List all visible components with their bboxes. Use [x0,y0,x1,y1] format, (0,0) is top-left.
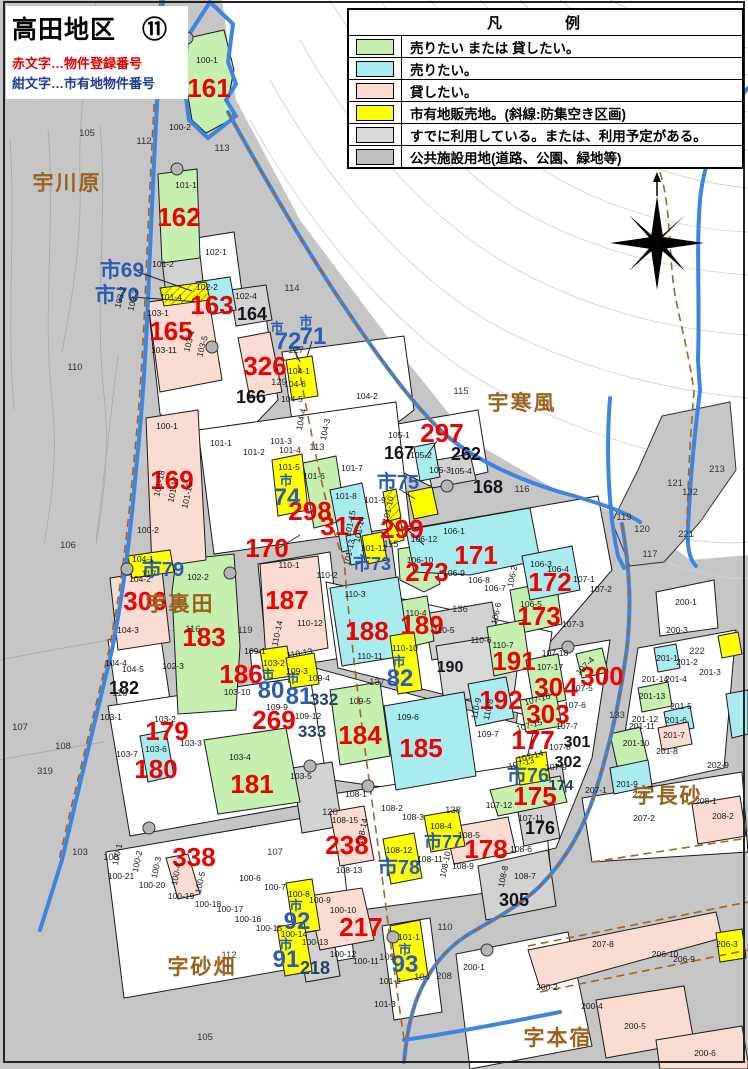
lot-label: 200-5 [624,1021,646,1031]
road-label: 110 [437,922,452,933]
lot-label: 107-17 [537,662,564,672]
lot-label: 106-9 [443,568,465,578]
lot-label: 108-7 [514,871,536,881]
lot-label: 103-11 [151,345,177,355]
legend-color-swatch [356,61,394,77]
navy-label: 332 [310,690,338,709]
lot-label: 201-10 [623,738,650,748]
road-label: 137 [369,677,385,688]
road-label: 105 [79,128,95,139]
lot-label: 103-3 [180,738,202,748]
lot-label: 108-9 [452,861,474,871]
lot-label: 103-4 [229,752,251,762]
area-label: 宇寒風 [488,391,557,415]
lot-label: 201-8 [656,746,678,756]
lot-label: 201-6 [665,715,687,725]
lot-label: 100-19 [168,891,195,901]
lot-label: 106-4 [547,564,569,574]
legend-row-5: 公共施設用地(道路、公園、緑地等) [349,146,742,167]
lot-label: 102-4 [235,291,257,301]
lot-label: 107-9 [545,762,567,772]
parcel-yellow [718,632,742,658]
lot-label: 202-9 [707,760,729,770]
red-number-note: 赤文字…物件登録番号 [12,54,182,74]
red-label: 191 [492,646,535,676]
lot-label: 108-4 [430,821,452,831]
area-label: 宇長砂 [634,784,703,808]
road-label: 138 [445,805,461,816]
road-label: 213 [709,464,725,475]
lot-label: 100-17 [217,904,244,914]
lot-label: 206-9 [673,954,695,964]
lot-label: 108-13 [336,865,363,875]
legend-swatch-cell [349,58,402,79]
road-label: 112 [136,136,151,147]
lot-label: 201-5 [670,701,692,711]
lot-label: 108-11 [417,854,443,864]
road-label: 105 [197,1032,213,1043]
lot-label: 107-5 [571,683,593,693]
legend-swatch-cell [349,146,402,167]
road-label: 132 [682,487,698,498]
blue-label: 91 [273,946,300,973]
red-label: 186 [219,659,262,689]
navy-label: 174 [548,777,574,794]
road-label: 121 [667,478,683,489]
lot-label: 109-1 [244,646,266,656]
lot-label: 101-1 [210,438,232,448]
road-label: 116 [514,484,529,495]
lot-label: 109-9 [266,702,288,712]
dark-label: 262 [451,444,481,464]
lot-label: 102-2 [187,572,209,582]
road-label: 108 [55,741,71,752]
legend-label: 公共施設用地(道路、公園、緑地等) [402,147,622,167]
lot-label: 110-7 [492,640,513,650]
lot-label: 109-12 [295,711,322,721]
red-label: 217 [339,912,382,942]
lot-label: 101-6 [303,471,325,481]
road-label: 104 [414,972,430,983]
lot-label: 104-5 [122,664,144,674]
road-label: 319 [37,766,53,777]
blue-label: 市77 [424,831,462,852]
legend-swatch-cell [349,102,402,123]
blue-label: 81 [286,683,313,710]
lot-label: 108-15 [332,815,359,825]
lot-label: 101-3 [374,999,396,1009]
lot-label: 105-1 [388,430,410,440]
red-label: 181 [230,769,273,799]
lot-label: 100-20 [139,880,166,890]
lot-label: 104-1 [288,366,310,376]
lot-label: 107-7 [556,721,578,731]
legend-swatch-cell [349,124,402,145]
blue-label: 市73 [353,553,391,574]
road-label: 136 [452,604,468,615]
road-label: 116 [185,624,200,635]
lot-label: 100-8 [288,889,310,899]
lot-label: 101-2 [152,259,174,269]
red-label: 163 [190,290,233,320]
road-label: 107 [267,847,283,858]
lot-label: 110-1 [278,560,299,570]
lot-label: 201-14 [642,674,669,684]
lot-label: 108-1 [345,789,367,799]
lot-label: 106-5 [520,599,542,609]
lot-label: 101-7 [341,463,363,473]
lot-label: 109-6 [397,712,419,722]
lot-label: 201-4 [665,674,687,684]
legend-label: 市有地販売地。(斜線:防集空き区画) [402,103,626,123]
road-label: 117 [642,549,657,560]
lot-label: 103-7 [116,749,138,759]
lot-label: 107-12 [486,800,513,810]
lot-label: 103-2 [263,658,285,668]
lot-label: 108-2 [381,803,403,813]
road-label: 114 [284,283,299,294]
navy-label: 333 [298,722,326,741]
legend-label: 売りたい。 [402,59,478,79]
lot-label: 207-8 [592,939,614,949]
lot-label: 107-18 [542,648,569,658]
road-label: 109 [379,952,395,963]
lot-label: 100-10 [330,905,357,915]
lot-label: 101-2 [379,976,401,986]
red-label: 170 [245,533,288,563]
legend-title: 凡 例 [349,10,742,36]
road-label: 127 [288,345,304,356]
red-label: 161 [187,73,230,103]
lot-label: 200-6 [694,1048,716,1058]
legend-color-swatch [356,39,394,55]
lot-label: 200-4 [581,1001,603,1011]
legend-row-3: 市有地販売地。(斜線:防集空き区画) [349,102,742,124]
road-label: 133 [609,710,625,721]
lot-label: 104-3 [117,625,139,635]
blue-label: 80 [258,677,285,704]
lot-label: 201-13 [639,691,666,701]
dark-label: 168 [473,477,503,497]
lot-label: 107-6 [564,700,586,710]
lot-label: 105-4 [450,466,472,476]
lot-label: 101-12 [361,543,388,553]
red-label: 180 [134,754,177,784]
lot-label: 104-5 [281,394,303,404]
legend-swatch-cell [349,36,402,57]
lot-label: 108-5 [458,830,480,840]
legend-label: 貸したい。 [402,81,478,101]
lot-label: 103-1 [147,308,169,318]
lot-label: 107-8 [549,742,571,752]
lot-label: 201-2 [676,657,698,667]
lot-label: 108-3 [402,812,424,822]
lot-label: 100-9 [309,895,331,905]
blue-label: 82 [387,665,414,692]
road-label: 106 [60,540,76,551]
lot-label: 105-3 [429,465,451,475]
lot-label: 201-3 [699,667,721,677]
area-label: 宇裏田 [146,592,215,616]
red-label: 185 [399,733,442,763]
lot-label: 110-6 [470,635,491,645]
dark-label: 166 [236,387,266,407]
lot-label: 201-7 [663,730,685,740]
lot-label: 109-4 [308,673,330,683]
lot-label: 104-2 [356,391,378,401]
lot-label: 100-6 [239,873,261,883]
road-label: 119 [616,512,631,523]
legend-row-4: すでに利用している。または、利用予定がある。 [349,124,742,146]
blue-label: 市78 [378,855,420,879]
lot-label: 103-6 [145,744,167,754]
lot-label: 100-13 [302,937,329,947]
lot-label: 100-15 [256,923,283,933]
area-label: 宇川原 [33,171,102,195]
lot-label: 200-2 [536,982,558,992]
lot-label: 200-1 [463,962,485,972]
lot-label: 100-2 [137,525,159,535]
lot-label: 103-2 [154,714,176,724]
red-label: 171 [454,540,497,570]
legend-row-0: 売りたい または 貸したい。 [349,36,742,58]
lot-label: 200-1 [675,597,697,607]
lot-label: 101-4 [160,292,182,302]
legend-label: 売りたい または 貸したい。 [402,37,580,57]
lot-label: 107-1 [573,574,595,584]
lot-label: 207-1 [585,785,607,795]
lot-label: 201-1 [656,653,678,663]
lot-label: 107-3 [562,619,584,629]
legend-swatch-cell [349,80,402,101]
lot-label: 102-3 [162,661,184,671]
lot-label: 109-5 [349,696,371,706]
road-label: 119 [237,625,252,636]
lot-label: 206-3 [716,939,738,949]
blue-label: 市69 [100,258,144,282]
red-label: 188 [345,616,388,646]
area-label: 字本宿 [524,1026,593,1050]
lot-label: 109-3 [286,666,308,676]
lot-label: 103-5 [290,771,312,781]
lot-label: 208-2 [712,811,734,821]
lot-label: 110-11 [357,651,382,661]
road-label: 107 [12,722,28,733]
lot-label: 107-11 [518,813,544,823]
lot-label: 103-1 [100,712,122,722]
lot-label: 101-1 [175,180,197,190]
title-block: 高田地区 ⑪ 赤文字…物件登録番号 紺文字…市有地物件番号 [6,6,188,99]
lot-label: 110-3 [344,589,365,599]
dark-label: 305 [499,890,529,910]
lot-label: 100-2 [169,122,191,132]
legend-color-swatch [356,149,394,165]
lot-label: 110-12 [297,618,323,628]
lot-label: 106-12 [411,534,438,544]
red-label: 162 [157,202,200,232]
lot-label: 101-2 [243,447,265,457]
lot-label: 102-2 [196,282,218,292]
lot-label: 104-2 [129,574,151,584]
lot-label: 110-4 [405,608,426,618]
legend-color-swatch [356,127,394,143]
lot-label: 101-1 [398,932,420,942]
lot-label: 201-11 [629,721,655,731]
lot-label: 106-10 [407,555,434,565]
lot-label: 104-1 [132,554,154,564]
lot-label: 108-6 [510,844,532,854]
lot-label: 104-6 [284,379,306,389]
lot-label: 207-2 [633,813,655,823]
road-label: 115 [453,386,468,397]
lot-label: 101-5 [278,462,300,472]
legend-row-2: 貸したい。 [349,80,742,102]
lot-label: 110-2 [316,570,337,580]
lot-label: 109-7 [477,729,499,739]
road-label: 110 [67,362,82,373]
road-label: 113 [309,442,324,453]
lot-label: 105-2 [410,450,432,460]
lot-label: 110-10 [392,643,418,653]
dark-label: 164 [237,304,267,324]
lot-label: 103-10 [224,687,251,697]
lot-label: 100-7 [264,882,286,892]
lot-label: 106-1 [443,526,465,536]
lot-label: 100-11 [353,956,379,966]
lot-label: 200-3 [666,625,688,635]
road-label: 118 [112,688,127,699]
legend-color-swatch [356,105,394,121]
navy-label: 218 [300,958,330,978]
lot-label: 107-2 [590,584,612,594]
road-label: 120 [634,524,650,535]
road-label: 208 [436,971,452,982]
road-label: 221 [678,529,694,540]
blue-label: 74 [274,484,301,511]
map-sheet: 1611621631653262971692983172991702731711… [0,0,748,1069]
road-label: 113 [214,143,229,154]
lot-label: 101-9 [364,495,386,505]
lot-label: 110-5 [433,625,454,635]
legend-color-swatch [356,83,394,99]
red-label: 184 [338,720,382,750]
legend-items: 売りたい または 貸したい。売りたい。貸したい。市有地販売地。(斜線:防集空き区… [349,36,742,167]
blue-label: 市75 [377,470,419,494]
red-label: 187 [265,585,308,615]
lot-label: 102-1 [205,247,227,257]
lot-label: 101-8 [335,491,357,501]
blue-number-note: 紺文字…市有地物件番号 [12,74,182,94]
legend-label: すでに利用している。または、利用予定がある。 [402,125,707,145]
lot-label: 108-12 [386,845,413,855]
dark-label: 190 [437,659,464,676]
lot-label: 100-21 [108,871,135,881]
road-label: 103 [72,847,88,858]
lot-label: 100-1 [196,55,218,65]
road-label: 222 [689,646,705,657]
lot-label: 106-7 [484,583,506,593]
legend: 凡 例 売りたい または 貸したい。売りたい。貸したい。市有地販売地。(斜線:防… [347,8,744,169]
lot-label: 100-1 [156,421,178,431]
legend-row-1: 売りたい。 [349,58,742,80]
area-label: 字砂畑 [168,955,237,979]
lot-label: 101-4 [279,445,301,455]
page-title: 高田地区 ⑪ [12,10,182,46]
